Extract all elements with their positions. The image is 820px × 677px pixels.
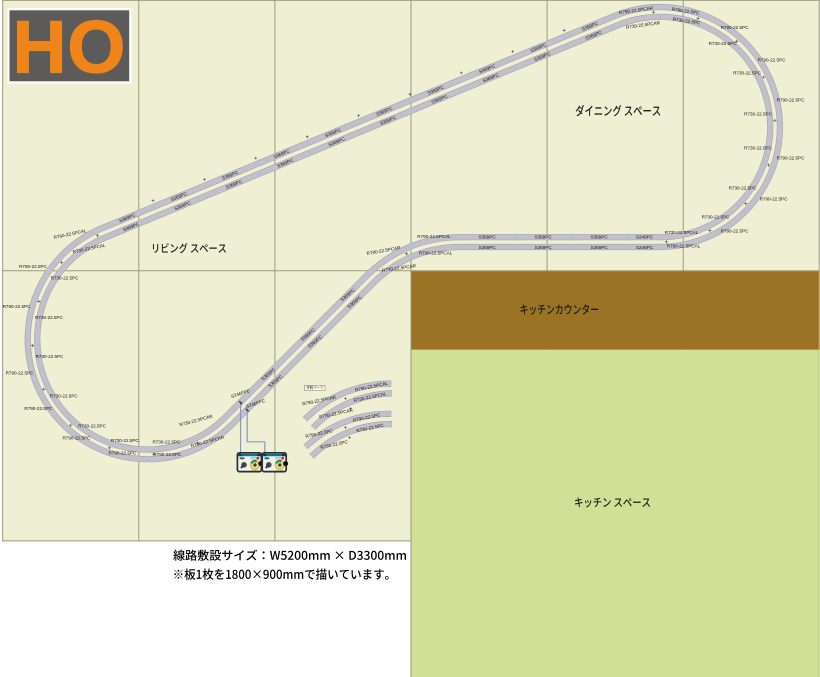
svg-text:R730-22.5PCAL: R730-22.5PCAL bbox=[419, 250, 453, 255]
svg-text:S369PC: S369PC bbox=[479, 245, 497, 250]
svg-text:R790-22.5PC: R790-22.5PC bbox=[3, 304, 32, 309]
svg-text:R730-22.5PC: R730-22.5PC bbox=[733, 71, 762, 76]
svg-text:S369PC: S369PC bbox=[591, 245, 609, 250]
svg-text:R790-22.5PC: R790-22.5PC bbox=[6, 371, 35, 376]
svg-text:S369PC: S369PC bbox=[591, 235, 609, 240]
svg-text:R790-22.5PC: R790-22.5PC bbox=[758, 58, 787, 63]
svg-text:R730-22.5PC: R730-22.5PC bbox=[702, 215, 731, 220]
svg-text:R730-22.5PC: R730-22.5PC bbox=[152, 440, 181, 445]
svg-text:R790-22.5PC: R790-22.5PC bbox=[777, 156, 806, 161]
svg-text:R790-22.5PC: R790-22.5PC bbox=[777, 98, 806, 103]
svg-text:R730-22.5PCAL: R730-22.5PCAL bbox=[665, 230, 699, 235]
svg-text:R730-22.5PC: R730-22.5PC bbox=[78, 424, 107, 429]
svg-text:R790-22.5PC: R790-22.5PC bbox=[24, 406, 53, 411]
svg-text:HO: HO bbox=[13, 6, 127, 89]
svg-text:R790-22.5PC: R790-22.5PC bbox=[62, 436, 91, 441]
svg-text:R790-22.5PC: R790-22.5PC bbox=[153, 452, 182, 457]
svg-text:R730-22.5PC: R730-22.5PC bbox=[50, 394, 79, 399]
svg-text:R730-22.5PC: R730-22.5PC bbox=[729, 186, 758, 191]
svg-text:R730-22.5PC: R730-22.5PC bbox=[744, 112, 773, 117]
svg-text:R730-22.5PC: R730-22.5PC bbox=[744, 146, 773, 151]
svg-text:R790-22.5PCAL: R790-22.5PCAL bbox=[667, 244, 701, 249]
svg-text:R790-22.5PC: R790-22.5PC bbox=[760, 197, 789, 202]
svg-text:R730-22.5PC: R730-22.5PC bbox=[51, 276, 80, 281]
svg-text:S246PC: S246PC bbox=[636, 245, 654, 250]
svg-text:S246PC: S246PC bbox=[636, 235, 654, 240]
svg-text:R730-22.5PC: R730-22.5PC bbox=[35, 315, 64, 320]
svg-text:R790-22.5PC: R790-22.5PC bbox=[721, 229, 750, 234]
svg-text:R730-22.5PC: R730-22.5PC bbox=[36, 354, 65, 359]
svg-text:R790-22.5PC: R790-22.5PC bbox=[721, 25, 750, 30]
svg-text:S369PC: S369PC bbox=[535, 245, 553, 250]
svg-text:R730-22.5PC: R730-22.5PC bbox=[111, 438, 140, 443]
svg-text:S369PC: S369PC bbox=[535, 235, 553, 240]
svg-text:R790-22.5PC: R790-22.5PC bbox=[19, 264, 48, 269]
svg-text:R790-22.5PC: R790-22.5PC bbox=[108, 451, 137, 456]
svg-text:S369PC: S369PC bbox=[479, 235, 497, 240]
svg-text:R790-22.5PCAL: R790-22.5PCAL bbox=[417, 234, 451, 239]
svg-text:R730-22.5PC: R730-22.5PC bbox=[709, 41, 738, 46]
